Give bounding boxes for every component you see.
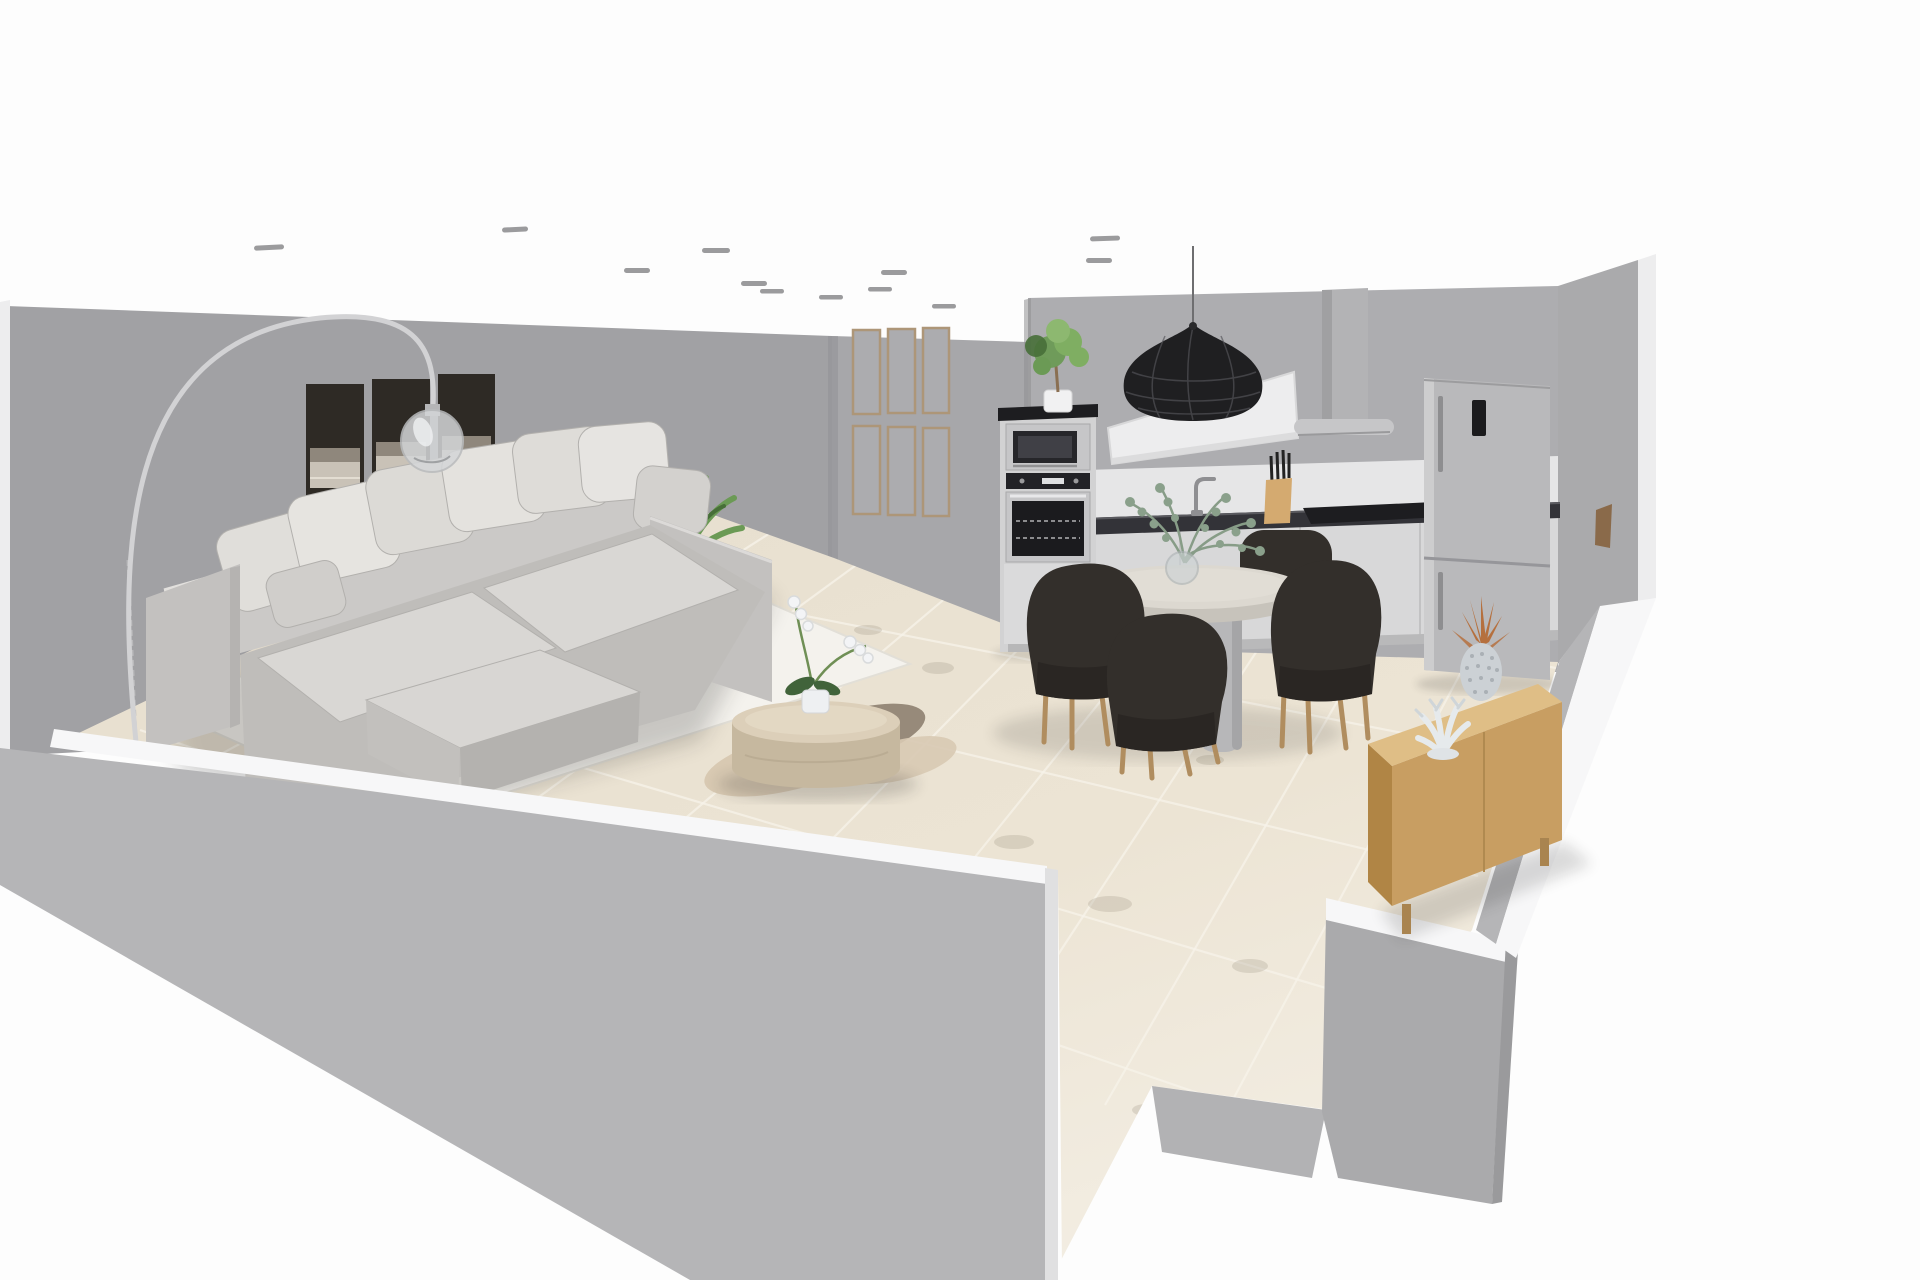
frame-row-2 [853, 426, 949, 516]
room-render [0, 0, 1920, 1280]
glass-vase [1166, 552, 1198, 584]
fridge-display [1472, 400, 1486, 436]
outside-far-right [1656, 0, 1920, 1280]
round-coffee-table[interactable] [718, 701, 918, 801]
corner-wall-face [1322, 916, 1506, 1204]
orchid-pot [802, 690, 829, 713]
frame-row-1 [853, 328, 949, 414]
doorway-edge [1045, 868, 1058, 1280]
oven [1006, 492, 1090, 562]
door-glimpse [1595, 504, 1612, 548]
floorplan-3d-viewport[interactable] [0, 0, 1920, 1280]
west-wall-edge [0, 300, 10, 754]
oven-control-band [1006, 473, 1090, 489]
sideboard-leg [1402, 904, 1411, 934]
east-wall-edge [1638, 254, 1656, 602]
sideboard-leg [1540, 838, 1549, 866]
microwave-oven [1006, 424, 1090, 470]
